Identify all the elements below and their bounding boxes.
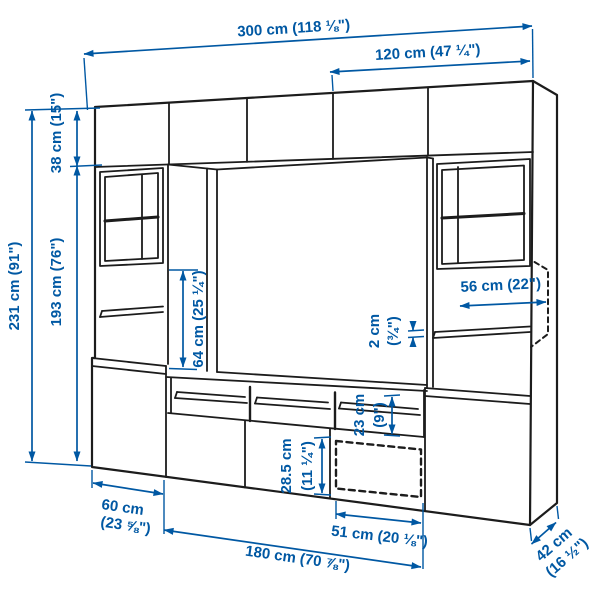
dimension-label: 300 cm (118 ⅛") [237, 16, 351, 40]
dimension-label: (9") [371, 402, 388, 427]
dimension-label: 51 cm (20 ⅛") [330, 523, 428, 551]
dimension-label: 28.5 cm [278, 438, 295, 493]
dim-shelf-thickness: 2 cm (¾") [366, 314, 424, 348]
product-dimension-image: 300 cm (118 ⅛") 120 cm (47 ¼") 231 cm (9… [0, 0, 600, 600]
dimension-label: 120 cm (47 ¼") [375, 41, 481, 64]
dimension-label: 38 cm (15") [48, 93, 65, 174]
dimension-diagram: 300 cm (118 ⅛") 120 cm (47 ¼") 231 cm (9… [0, 0, 600, 600]
dimension-label: 2 cm [366, 314, 383, 348]
dimension-label: 231 cm (91") [6, 242, 23, 331]
dim-shelf-depth: 56 cm (22") [460, 275, 546, 306]
right-glass-door-cabinet [437, 159, 530, 269]
dimension-label: (11 ¼") [299, 441, 316, 491]
tv-opening [168, 158, 433, 389]
right-base-cabinet [425, 388, 530, 511]
furniture-line-drawing [92, 81, 557, 525]
dimension-label: 23 cm [351, 394, 368, 437]
dim-side-cabinet-width: 60 cm (23 ⅝") [92, 470, 164, 537]
left-open-shelves [100, 307, 163, 318]
dim-tv-space-height: 64 cm (25 ¼") [169, 270, 207, 370]
dimension-label: (23 ⅝") [99, 514, 151, 538]
dim-top-cabinet-height: 38 cm (15") [48, 93, 77, 174]
dimension-label: 193 cm (76") [48, 238, 65, 327]
left-base-cabinet [92, 358, 166, 477]
dim-drawer-height: 28.5 cm (11 ¼") [278, 437, 331, 495]
right-open-shelves [433, 327, 530, 339]
dim-total-width: 300 cm (118 ⅛") [84, 16, 533, 110]
dimension-label: (¾") [385, 316, 402, 346]
dimension-label: 180 cm (70 ⅞") [244, 543, 351, 575]
dim-compartment-height: 23 cm (9") [351, 394, 400, 437]
top-cabinet-row [95, 87, 533, 167]
dimension-label: 64 cm (25 ¼") [190, 270, 207, 367]
dashed-drawer-outline [336, 441, 421, 497]
dimension-label: 56 cm (22") [460, 275, 541, 296]
left-glass-door-cabinet [100, 168, 163, 266]
